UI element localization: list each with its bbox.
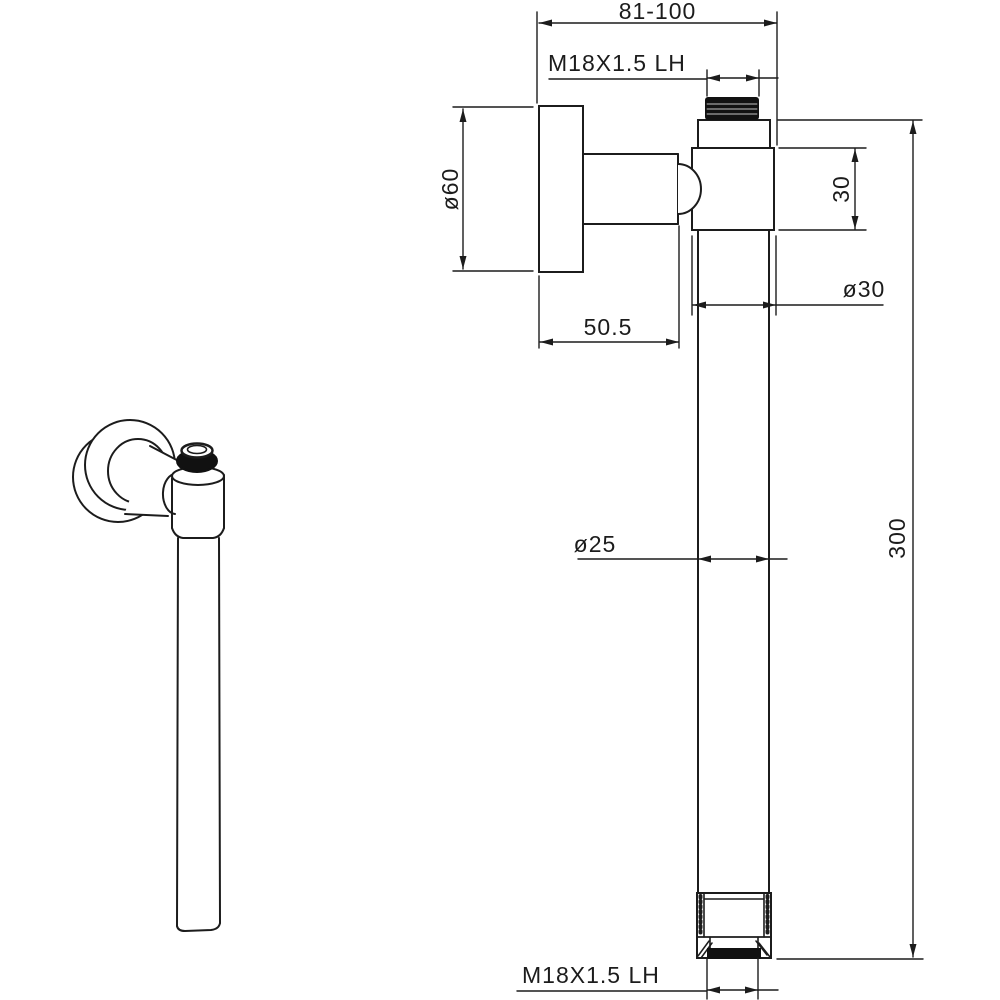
dim-flange-depth-label: 50.5 [548, 314, 668, 340]
dim-flange-dia-lines [453, 107, 533, 271]
bottom-nut-thread-band [708, 949, 760, 958]
dim-pipe-dia-label: ø25 [535, 531, 655, 557]
dim-valve-dia-label: ø30 [804, 276, 924, 302]
front-view [539, 98, 774, 958]
technical-drawing-canvas: 81-100 M18X1.5 LH ø60 30 ø30 50.5 ø25 30… [0, 0, 1000, 1000]
dim-thread-top-label: M18X1.5 LH [548, 50, 748, 76]
dim-pipe-length-label: 300 [884, 493, 910, 583]
pipe-bottom-cap [177, 923, 220, 931]
top-fitting-outline [698, 120, 770, 148]
valve-body-outline [692, 148, 774, 230]
perspective-view [73, 420, 224, 931]
valve-bottom-shoulder [172, 528, 224, 538]
pipe-left-edge [177, 538, 178, 926]
flange-outline [539, 106, 583, 272]
top-thread-stub [706, 98, 758, 119]
dim-valve-height-label: 30 [828, 144, 854, 234]
dim-width-range-label: 81-100 [590, 0, 725, 24]
dim-thread-bottom-label: M18X1.5 LH [522, 962, 722, 988]
pipe-right-edge [219, 538, 220, 923]
bottom-nut [697, 893, 771, 958]
dim-flange-dia-label: ø60 [437, 144, 463, 234]
